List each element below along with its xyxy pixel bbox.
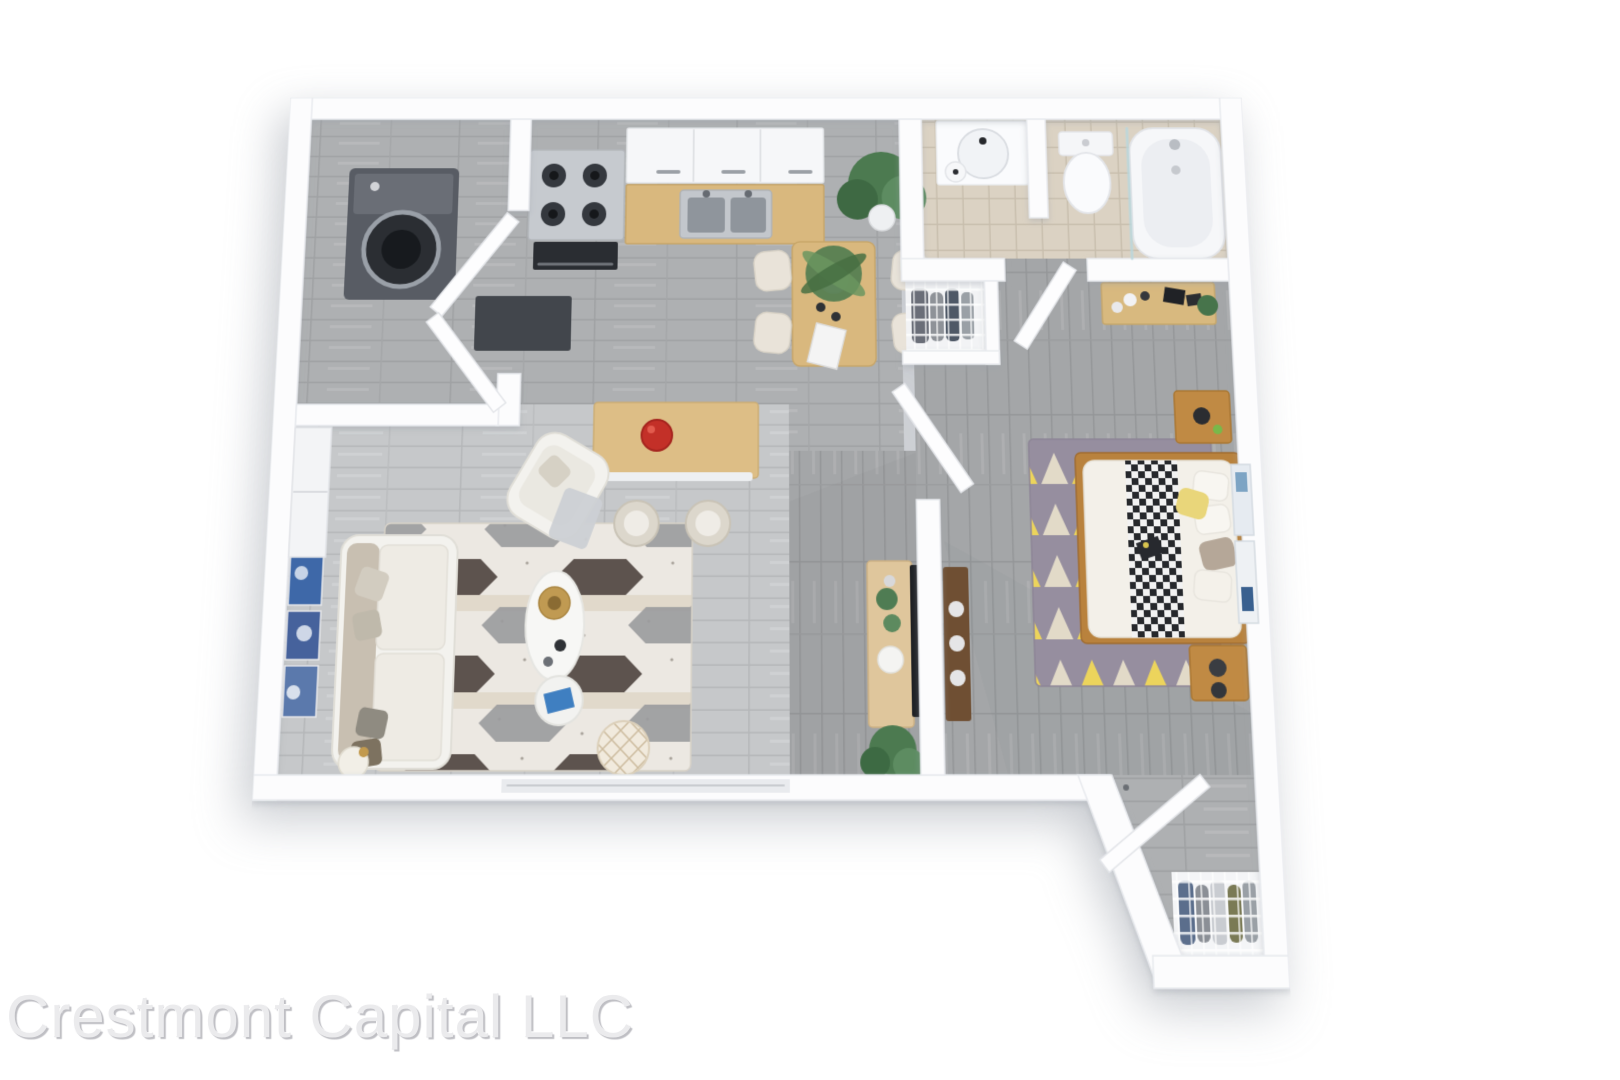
cabinet-handle-2 bbox=[721, 170, 745, 174]
dining-bath-wall bbox=[899, 119, 924, 270]
bath-wall-right bbox=[1087, 259, 1229, 281]
bar-stool-2-seat bbox=[695, 510, 720, 536]
dining-chair-2 bbox=[753, 311, 793, 354]
faucet-right bbox=[745, 190, 752, 197]
bedroom-living-wall bbox=[916, 500, 944, 775]
watermark-text: Crestmont Capital LLC bbox=[6, 982, 634, 1051]
leaning-art-1-print bbox=[1235, 472, 1248, 492]
cabinet-handle-1 bbox=[656, 170, 680, 174]
leaning-art-2-print bbox=[1241, 587, 1254, 611]
bath-partition-wall bbox=[1027, 119, 1049, 218]
dining-chair-1 bbox=[753, 249, 793, 292]
wall-art-1 bbox=[288, 557, 323, 605]
console-bowl bbox=[878, 646, 904, 672]
pouf-ottoman bbox=[597, 721, 649, 775]
plant-monstera-pot bbox=[869, 205, 896, 231]
oven bbox=[533, 242, 618, 270]
faucet-left bbox=[703, 190, 711, 197]
stove-cooktop bbox=[528, 150, 625, 240]
bath-wall-left bbox=[901, 259, 1005, 281]
floor-plan-image: Crestmont Capital LLC bbox=[0, 0, 1620, 1080]
bathtub-inner bbox=[1140, 139, 1214, 247]
sofa-pillow-3 bbox=[354, 706, 389, 740]
hall-closet-wall-bottom bbox=[903, 351, 1000, 364]
sofa-pillow-2 bbox=[351, 608, 383, 642]
bed-pillow-3 bbox=[1193, 569, 1232, 603]
dining-cup-1 bbox=[816, 303, 825, 312]
floor-plan-canvas bbox=[239, 98, 1293, 1044]
hall-closet-wire-rack bbox=[905, 281, 986, 351]
dining-cup-2 bbox=[831, 312, 841, 321]
cabinet-handle-3 bbox=[788, 170, 812, 174]
sink-basin-left bbox=[687, 198, 725, 233]
living-kitchen-wall bbox=[295, 404, 498, 425]
fruit-bowl bbox=[641, 420, 672, 451]
upper-cabinets bbox=[626, 128, 823, 183]
laundry-wall bbox=[508, 119, 531, 210]
entry-closet-wire-rack bbox=[1171, 872, 1264, 956]
kitchen-desk bbox=[474, 296, 572, 351]
entry-wall-bottom bbox=[1153, 956, 1290, 989]
kitchen-island bbox=[593, 402, 759, 478]
sofa-seat-1 bbox=[376, 545, 448, 649]
washer-top bbox=[353, 174, 453, 214]
island-base bbox=[599, 472, 753, 481]
sink-basin-right bbox=[730, 198, 766, 233]
apartment-floor-plan bbox=[239, 98, 1293, 1044]
outer-wall-top bbox=[289, 98, 1243, 120]
sofa-seat-2 bbox=[371, 654, 444, 761]
